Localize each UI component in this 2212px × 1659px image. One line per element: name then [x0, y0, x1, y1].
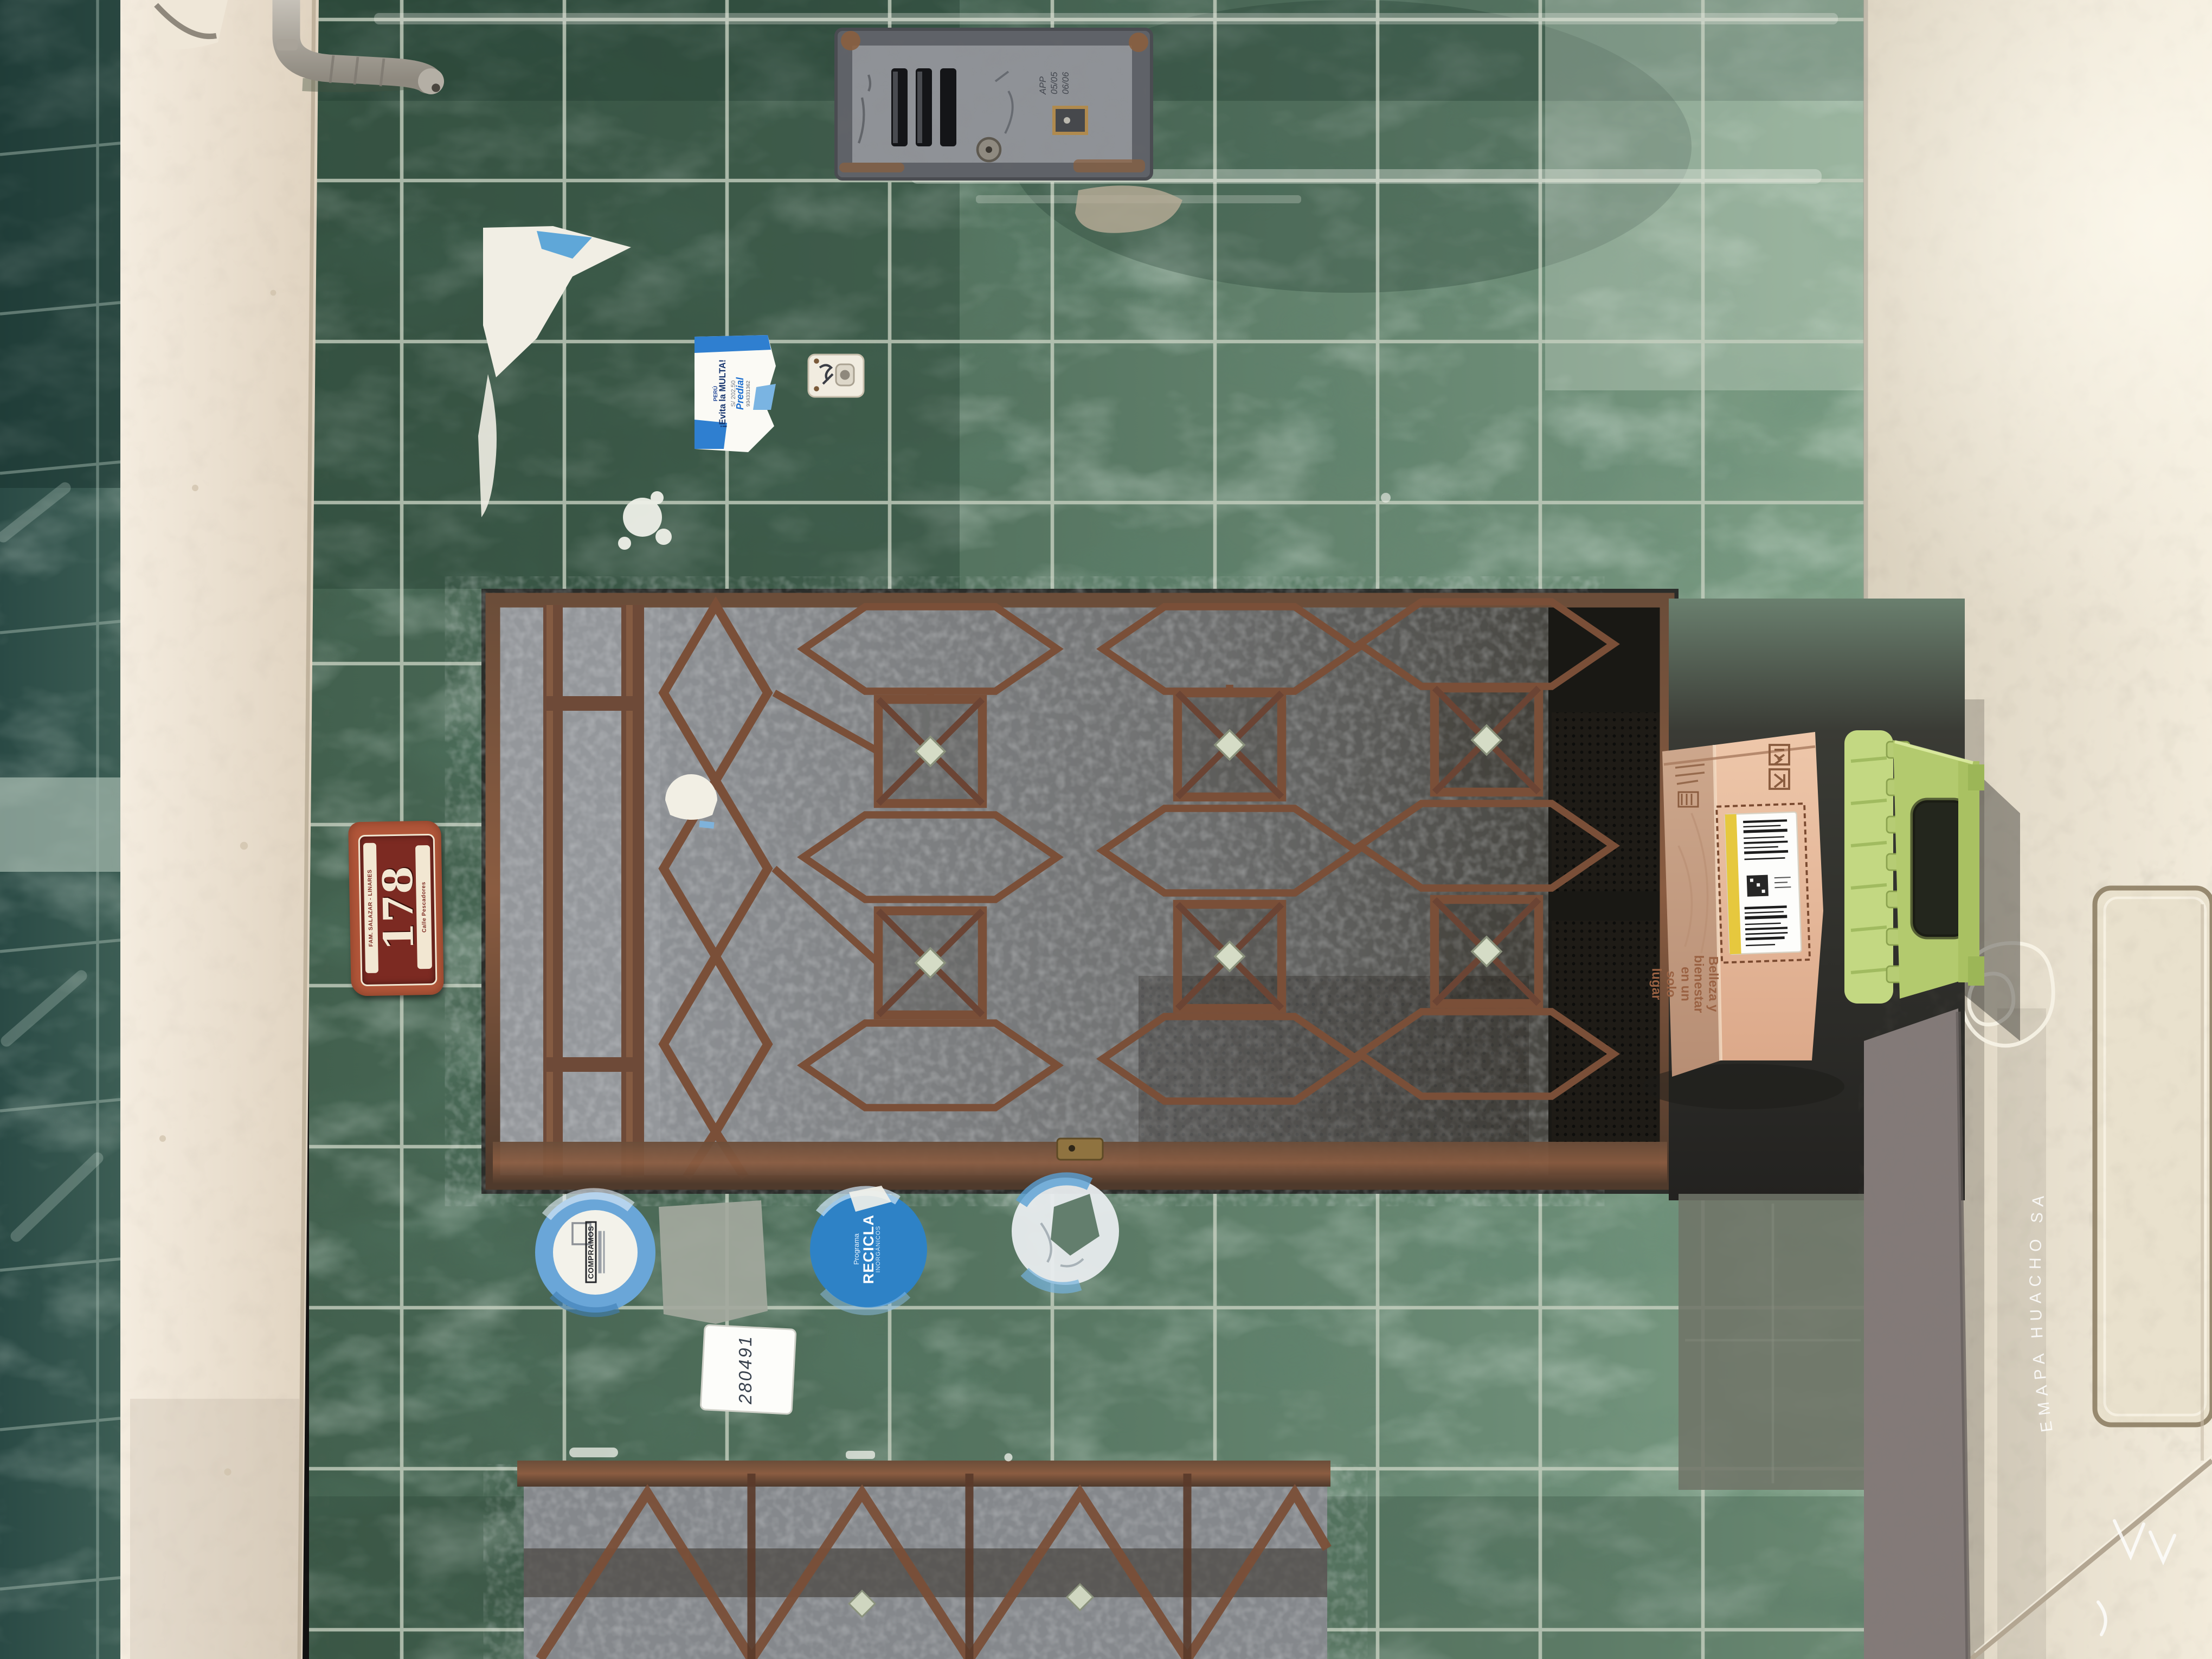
meter-box-window	[1054, 107, 1086, 133]
tax-sticker	[695, 335, 776, 452]
teal-tile-strip	[0, 0, 120, 1659]
meter-box	[836, 29, 1152, 179]
cream-wall-band	[120, 0, 319, 1659]
curb-plinth	[1864, 1008, 1968, 1659]
plaque-street-text: Calle Pescadores	[420, 882, 428, 933]
shipping-label	[1716, 803, 1810, 962]
plaque-street-band: Calle Pescadores	[415, 845, 432, 969]
gate-lock	[1057, 1139, 1103, 1160]
street-door-photo: EMAPA HUACHO SA	[0, 0, 2212, 1659]
meter-box-vents	[891, 68, 956, 146]
second-gate-rail	[517, 1461, 1330, 1487]
plaque-number: 178	[376, 835, 421, 979]
number-sticker	[700, 1325, 796, 1414]
compramos-sticker	[535, 1192, 655, 1313]
torn-gray-patch	[659, 1200, 768, 1324]
house-number-plaque: FAM. SALAZAR - LINARES 178 Calle Pescado…	[348, 821, 444, 996]
plaque-plate: FAM. SALAZAR - LINARES 178 Calle Pescado…	[358, 834, 438, 986]
main-gate	[481, 589, 1679, 1194]
doorbell	[808, 355, 864, 397]
photo-stage: EMAPA HUACHO SA	[0, 0, 2212, 1659]
photo-artwork: EMAPA HUACHO SA	[0, 0, 2212, 1659]
wall-fixture	[150, 0, 228, 50]
second-gate	[517, 1448, 1330, 1659]
plaque-family-text: FAM. SALAZAR - LINARES	[367, 869, 375, 947]
